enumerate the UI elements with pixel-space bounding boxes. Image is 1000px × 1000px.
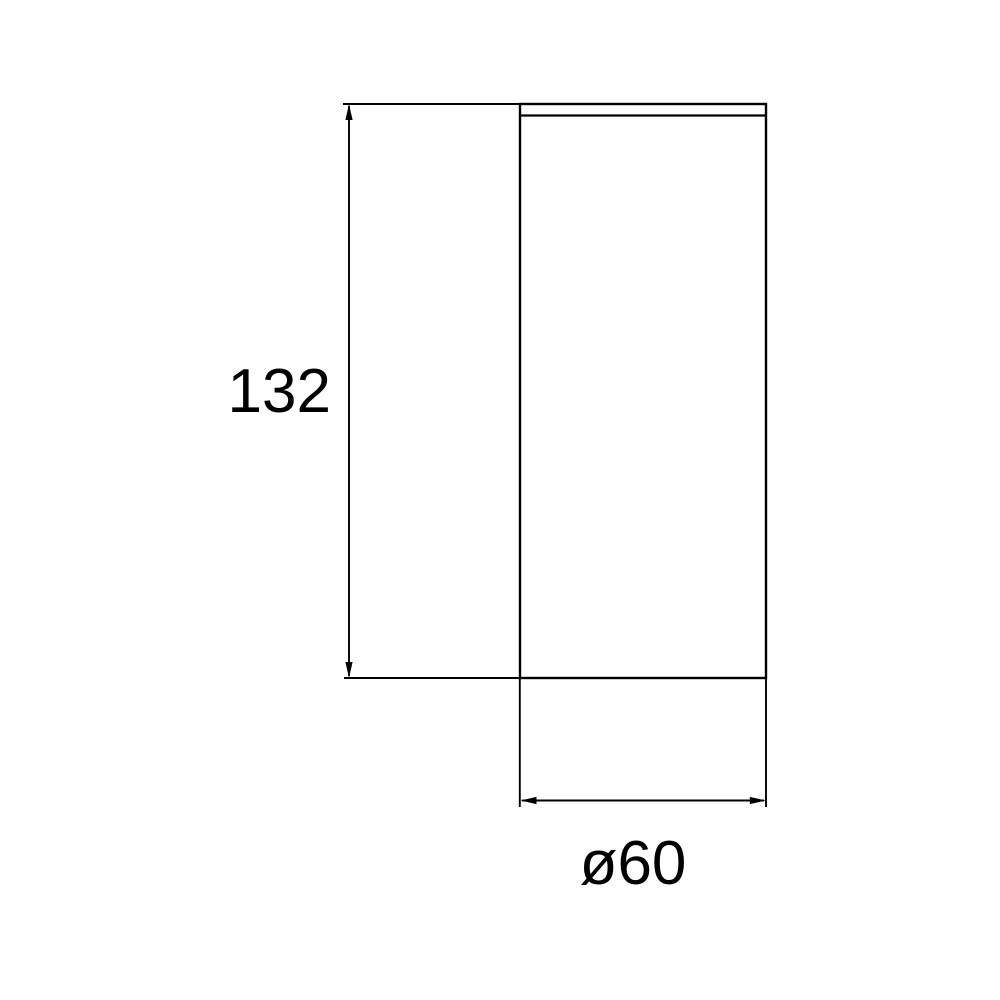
technical-drawing-canvas: 132 ø60: [0, 0, 1000, 1000]
fixture-outline: [520, 104, 766, 678]
diameter-dimension: ø60: [520, 679, 766, 898]
arrow-left-icon: [521, 797, 537, 804]
arrow-right-icon: [750, 797, 766, 804]
height-dimension: 132: [228, 104, 519, 678]
drawing-lines: 132 ø60: [228, 104, 766, 898]
diameter-dimension-label: ø60: [580, 829, 687, 898]
height-dimension-label: 132: [228, 357, 331, 426]
dimension-drawing-svg: 132 ø60: [0, 0, 1000, 1000]
fixture-body-outline: [520, 104, 766, 678]
arrow-up-icon: [345, 104, 352, 120]
arrow-down-icon: [345, 662, 352, 678]
